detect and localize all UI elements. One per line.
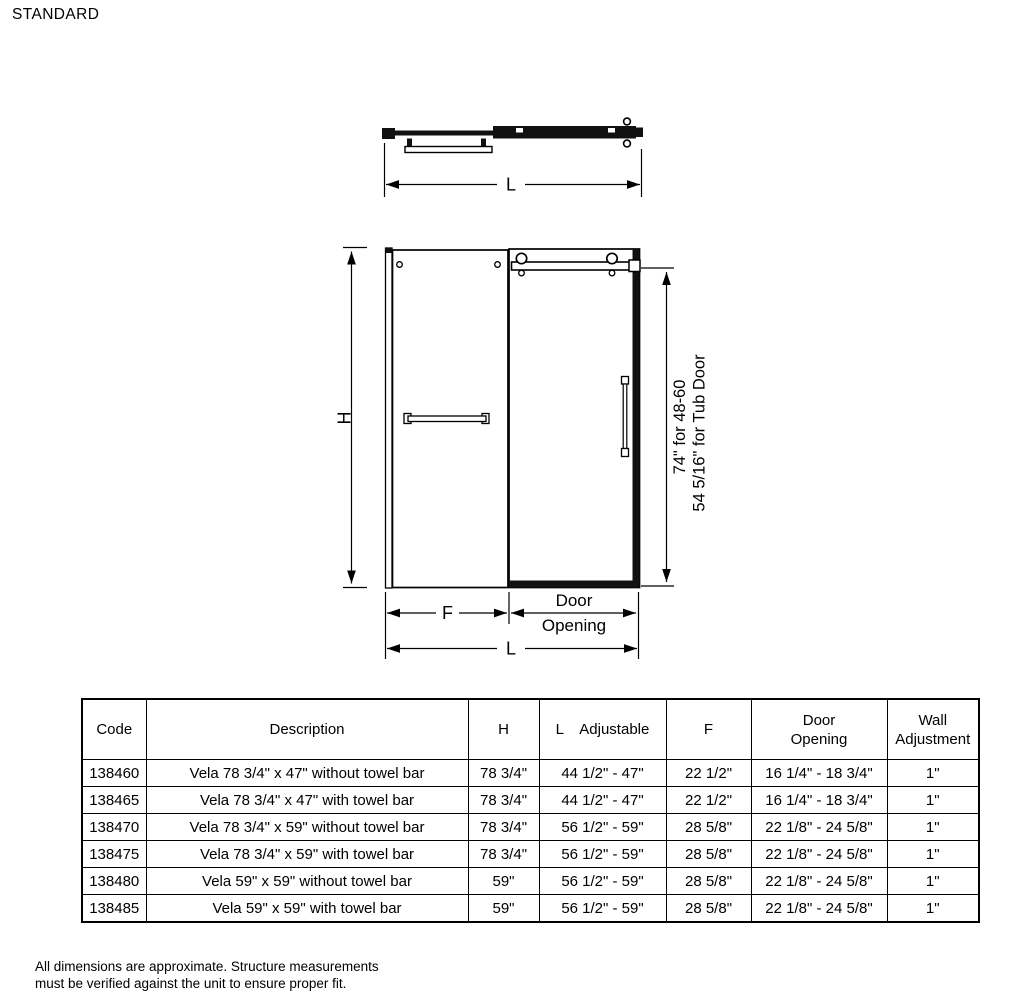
door-side-rail bbox=[633, 249, 640, 588]
cell-description: Vela 78 3/4" x 59" without towel bar bbox=[146, 814, 468, 841]
cell-l-adjustable: 44 1/2" - 47" bbox=[539, 787, 666, 814]
technical-drawing: L bbox=[0, 0, 1024, 690]
cell-f: 22 1/2" bbox=[666, 760, 751, 787]
cell-code: 138480 bbox=[82, 868, 146, 895]
cell-l-adjustable: 56 1/2" - 59" bbox=[539, 841, 666, 868]
cell-code: 138485 bbox=[82, 895, 146, 923]
cell-f: 28 5/8" bbox=[666, 841, 751, 868]
roller-left bbox=[516, 253, 526, 263]
height-label: H bbox=[335, 412, 355, 425]
sliding-door-panel bbox=[509, 249, 640, 588]
cell-l-adjustable: 56 1/2" - 59" bbox=[539, 895, 666, 923]
table-row: 138465 Vela 78 3/4" x 47" with towel bar… bbox=[82, 787, 979, 814]
plan-towel-bar-post-right bbox=[481, 139, 486, 148]
header-l-adjustable: L Adjustable bbox=[539, 699, 666, 760]
plan-roller-mark-right bbox=[608, 128, 615, 133]
cell-wall-adjustment: 1" bbox=[887, 760, 979, 787]
cell-l-adjustable: 56 1/2" - 59" bbox=[539, 814, 666, 841]
roller-bolt-left bbox=[519, 270, 525, 276]
cell-door-opening: 22 1/8" - 24 5/8" bbox=[751, 895, 887, 923]
door-height-dimension bbox=[641, 268, 674, 586]
cell-door-opening: 22 1/8" - 24 5/8" bbox=[751, 868, 887, 895]
cell-f: 22 1/2" bbox=[666, 787, 751, 814]
cell-h: 59" bbox=[468, 868, 539, 895]
cell-code: 138460 bbox=[82, 760, 146, 787]
cell-code: 138465 bbox=[82, 787, 146, 814]
door-height-label-line2: 54 5/16" for Tub Door bbox=[691, 354, 709, 512]
fixed-panel-hole-left bbox=[397, 262, 403, 268]
cell-description: Vela 78 3/4" x 59" with towel bar bbox=[146, 841, 468, 868]
front-view bbox=[386, 248, 641, 588]
door-bottom-rail bbox=[509, 581, 640, 588]
plan-end-knob-top bbox=[624, 118, 631, 125]
cell-door-opening: 16 1/4" - 18 3/4" bbox=[751, 760, 887, 787]
header-code: Code bbox=[82, 699, 146, 760]
footnote-line2: must be verified against the unit to ens… bbox=[35, 976, 379, 993]
table-row: 138480 Vela 59" x 59" without towel bar … bbox=[82, 868, 979, 895]
cell-h: 78 3/4" bbox=[468, 760, 539, 787]
wall-profile bbox=[386, 248, 393, 588]
cell-description: Vela 78 3/4" x 47" with towel bar bbox=[146, 787, 468, 814]
table-row: 138475 Vela 78 3/4" x 59" with towel bar… bbox=[82, 841, 979, 868]
cell-wall-adjustment: 1" bbox=[887, 868, 979, 895]
header-door-opening: Door Opening bbox=[751, 699, 887, 760]
wall-profile-cap bbox=[386, 248, 393, 253]
door-height-label-line1: 74" for 48-60 bbox=[671, 380, 689, 475]
footnote-line1: All dimensions are approximate. Structur… bbox=[35, 959, 379, 976]
cell-description: Vela 59" x 59" with towel bar bbox=[146, 895, 468, 923]
header-h: H bbox=[468, 699, 539, 760]
header-wall-adjustment: Wall Adjustment bbox=[887, 699, 979, 760]
cell-door-opening: 22 1/8" - 24 5/8" bbox=[751, 841, 887, 868]
plan-end-knob-bottom bbox=[624, 140, 631, 147]
plan-view-assembly bbox=[382, 118, 643, 152]
header-f: F bbox=[666, 699, 751, 760]
cell-l-adjustable: 44 1/2" - 47" bbox=[539, 760, 666, 787]
roller-bolt-right bbox=[609, 270, 615, 276]
plan-towel-bar bbox=[405, 147, 492, 153]
cell-f: 28 5/8" bbox=[666, 868, 751, 895]
table-row: 138485 Vela 59" x 59" with towel bar 59"… bbox=[82, 895, 979, 923]
plan-roller-mark-left bbox=[516, 128, 523, 133]
cell-code: 138475 bbox=[82, 841, 146, 868]
spec-table: Code Description H L Adjustable F Door O… bbox=[81, 698, 980, 923]
table-header-row: Code Description H L Adjustable F Door O… bbox=[82, 699, 979, 760]
footnote: All dimensions are approximate. Structur… bbox=[35, 959, 379, 992]
cell-l-adjustable: 56 1/2" - 59" bbox=[539, 868, 666, 895]
cell-f: 28 5/8" bbox=[666, 895, 751, 923]
length-label: L bbox=[506, 639, 516, 659]
table-row: 138460 Vela 78 3/4" x 47" without towel … bbox=[82, 760, 979, 787]
cell-wall-adjustment: 1" bbox=[887, 895, 979, 923]
plan-towel-bar-post-left bbox=[407, 139, 412, 148]
door-opening-label-line2: Opening bbox=[542, 616, 606, 635]
cell-h: 78 3/4" bbox=[468, 787, 539, 814]
fixed-panel-hole-right bbox=[495, 262, 501, 268]
cell-description: Vela 59" x 59" without towel bar bbox=[146, 868, 468, 895]
cell-description: Vela 78 3/4" x 47" without towel bar bbox=[146, 760, 468, 787]
track-end-block bbox=[629, 260, 640, 272]
plan-end-cap bbox=[636, 128, 643, 138]
table-row: 138470 Vela 78 3/4" x 59" without towel … bbox=[82, 814, 979, 841]
cell-h: 59" bbox=[468, 895, 539, 923]
plan-length-label: L bbox=[506, 175, 516, 195]
cell-h: 78 3/4" bbox=[468, 814, 539, 841]
cell-code: 138470 bbox=[82, 814, 146, 841]
cell-f: 28 5/8" bbox=[666, 814, 751, 841]
cell-wall-adjustment: 1" bbox=[887, 814, 979, 841]
fixed-width-label: F bbox=[442, 603, 453, 623]
cell-h: 78 3/4" bbox=[468, 841, 539, 868]
cell-wall-adjustment: 1" bbox=[887, 787, 979, 814]
cell-wall-adjustment: 1" bbox=[887, 841, 979, 868]
header-description: Description bbox=[146, 699, 468, 760]
cell-door-opening: 22 1/8" - 24 5/8" bbox=[751, 814, 887, 841]
door-opening-label-line1: Door bbox=[556, 591, 593, 610]
roller-right bbox=[607, 253, 617, 263]
cell-door-opening: 16 1/4" - 18 3/4" bbox=[751, 787, 887, 814]
